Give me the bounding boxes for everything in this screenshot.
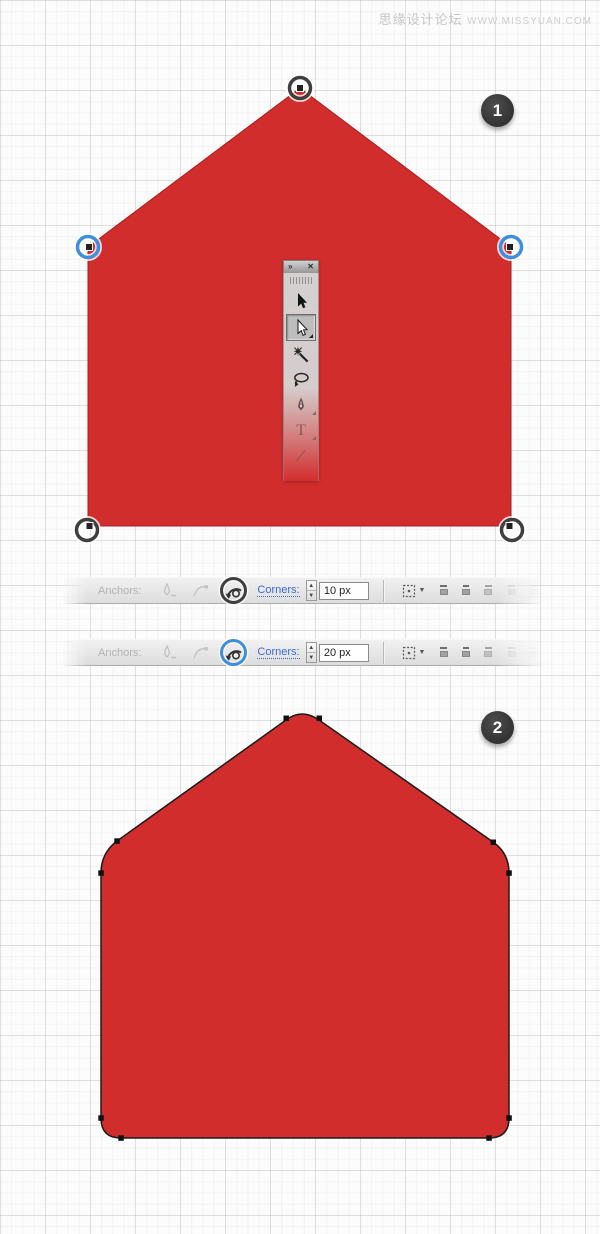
live-corner-icon-wrap[interactable] [223, 581, 245, 601]
align-extra-button[interactable] [529, 583, 540, 598]
watermark-site-url: WWW.MISSYUAN.COM [467, 16, 592, 27]
transform-reference-icon [401, 645, 417, 661]
corner-widget-right-selected[interactable] [501, 237, 522, 258]
stepper-up-icon[interactable]: ▲ [307, 581, 316, 591]
step-badge-2: 2 [481, 711, 514, 744]
corner-radius-stepper[interactable]: ▲ ▼ [306, 580, 317, 601]
align-center-button[interactable] [461, 583, 472, 598]
stepper-down-icon[interactable]: ▼ [307, 591, 316, 600]
corner-widget-bottom-left[interactable] [77, 520, 98, 541]
line-segment-tool-button[interactable] [284, 442, 318, 467]
divider [383, 642, 384, 664]
align-extra-button[interactable] [506, 645, 517, 660]
step-badge-2-label: 2 [493, 718, 502, 738]
step-badge-1-label: 1 [493, 101, 502, 121]
annotation-circle-blue [220, 639, 247, 666]
anchors-label: Anchors: [98, 585, 141, 597]
dropdown-caret-icon: ▼ [419, 649, 426, 656]
dropdown-caret-icon: ▼ [419, 587, 426, 594]
lasso-tool-button[interactable] [284, 367, 318, 392]
panel-grip-icon[interactable] [290, 277, 312, 284]
tool-flyout-indicator [312, 436, 316, 440]
svg-text:T: T [296, 422, 306, 439]
live-corner-icon-wrap[interactable] [223, 643, 245, 663]
convert-anchor-icon [192, 582, 210, 600]
corner-radius-input[interactable] [319, 582, 369, 600]
align-extra-button[interactable] [506, 583, 517, 598]
control-bar-2: Anchors: Corners: ▲ ▼ [62, 639, 545, 666]
corner-widget-bottom-right[interactable] [502, 520, 523, 541]
tools-panel-header[interactable]: » ✕ [283, 260, 319, 273]
align-left-button[interactable] [438, 583, 449, 598]
watermark: 思缘设计论坛 WWW.MISSYUAN.COM [379, 9, 592, 29]
align-right-button[interactable] [483, 583, 494, 598]
step-badge-1: 1 [481, 94, 514, 127]
align-left-button[interactable] [438, 645, 449, 660]
selection-tool-icon [292, 292, 310, 310]
lasso-tool-icon [292, 371, 310, 389]
tool-flyout-indicator [312, 411, 316, 415]
selection-tool-button[interactable] [284, 288, 318, 313]
tools-panel-body: T [283, 273, 319, 481]
magic-wand-tool-icon [292, 346, 310, 364]
direct-selection-tool-icon [292, 319, 310, 337]
align-right-button[interactable] [483, 645, 494, 660]
stepper-down-icon[interactable]: ▼ [307, 653, 316, 662]
close-panel-icon[interactable]: ✕ [307, 263, 314, 271]
control-bar-1: Anchors: Corners: ▲ ▼ [62, 577, 545, 604]
line-segment-tool-icon [292, 446, 310, 464]
remove-anchor-icon [158, 644, 178, 662]
transform-reference-button[interactable]: ▼ [401, 645, 426, 661]
convert-anchor-icon [192, 644, 210, 662]
transform-reference-icon [401, 583, 417, 599]
corner-radius-input[interactable] [319, 644, 369, 662]
corner-widget-left-selected[interactable] [78, 237, 99, 258]
type-tool-button[interactable]: T [284, 417, 318, 442]
type-tool-icon: T [292, 421, 310, 439]
tools-panel: » ✕ [283, 260, 319, 481]
corner-widget-top[interactable] [290, 78, 311, 99]
stepper-up-icon[interactable]: ▲ [307, 643, 316, 653]
watermark-site-name: 思缘设计论坛 [379, 12, 463, 27]
divider [383, 580, 384, 602]
corners-link[interactable]: Corners: [257, 646, 299, 659]
annotation-circle-dark [220, 577, 247, 604]
corners-link[interactable]: Corners: [257, 584, 299, 597]
align-center-button[interactable] [461, 645, 472, 660]
shape-step2-rounded-pentagon[interactable] [101, 714, 509, 1138]
collapse-panel-icon[interactable]: » [288, 263, 292, 271]
remove-anchor-icon [158, 582, 178, 600]
transform-reference-button[interactable]: ▼ [401, 583, 426, 599]
tool-flyout-indicator [309, 334, 313, 338]
pen-tool-button[interactable] [284, 392, 318, 417]
magic-wand-tool-button[interactable] [284, 342, 318, 367]
anchors-label: Anchors: [98, 647, 141, 659]
direct-selection-tool-button[interactable] [286, 314, 316, 341]
corner-radius-stepper[interactable]: ▲ ▼ [306, 642, 317, 663]
canvas-stage: 思缘设计论坛 WWW.MISSYUAN.COM [0, 0, 600, 1234]
align-extra-button[interactable] [529, 645, 540, 660]
pen-tool-icon [292, 396, 310, 414]
artboard [0, 0, 600, 1234]
